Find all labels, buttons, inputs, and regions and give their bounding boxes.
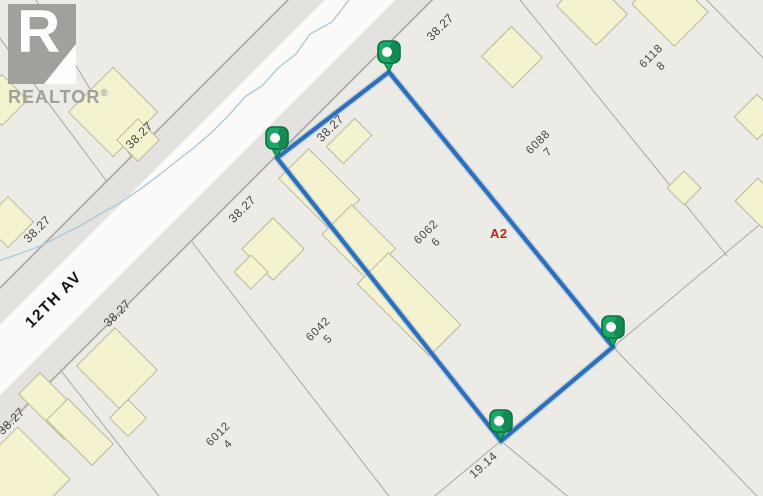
parcel-line <box>501 441 572 496</box>
realtor-logo: R <box>8 4 76 84</box>
building-footprint <box>734 94 763 139</box>
parcel-map: 38.27 38.27 38.27 38.27 38.27 38.27 38.2… <box>0 0 763 496</box>
dimension-label: 38.27 <box>424 11 457 44</box>
zoning-label: A2 <box>490 226 508 241</box>
pin-dot <box>270 133 280 143</box>
pin-dot <box>494 416 504 426</box>
building-footprint <box>482 27 543 88</box>
parcel-line <box>697 0 763 65</box>
dimension-label-rear: 19.14 <box>467 449 501 481</box>
building-footprint <box>667 171 701 205</box>
parcel-lot: 8 <box>655 60 669 74</box>
parcel-lot: 5 <box>322 333 336 347</box>
parcel-line <box>613 347 763 496</box>
parcel-lot: 4 <box>222 438 236 452</box>
registered-symbol: ® <box>100 88 108 99</box>
parcel-lot: 6 <box>430 236 444 250</box>
building-footprint <box>0 427 70 496</box>
parcel-label-6042: 6042 5 <box>304 315 343 354</box>
realtor-brand-text: REALTOR <box>8 87 100 107</box>
building-footprint <box>357 253 460 356</box>
realtor-logo-triangle <box>44 44 76 84</box>
pin-dot <box>606 322 616 332</box>
building-footprint <box>557 0 628 45</box>
parcel-label-6088: 6088 7 <box>524 128 563 167</box>
pin-dot <box>382 47 392 57</box>
realtor-wordmark: REALTOR® <box>8 87 109 108</box>
parcel-lot: 7 <box>542 146 556 160</box>
building-footprint <box>632 0 708 46</box>
building-footprint <box>735 178 763 227</box>
map-canvas[interactable]: 38.27 38.27 38.27 38.27 38.27 38.27 38.2… <box>0 0 763 496</box>
parcel-label-6012: 6012 4 <box>204 420 243 459</box>
parcel-label-6062: 6062 6 <box>412 218 451 257</box>
realtor-watermark: R REALTOR® <box>8 4 109 108</box>
parcel-label-6118: 6118 8 <box>637 42 675 80</box>
lot-corner-pin[interactable] <box>378 41 400 72</box>
parcel-line <box>430 216 763 496</box>
building-footprint <box>110 400 147 437</box>
